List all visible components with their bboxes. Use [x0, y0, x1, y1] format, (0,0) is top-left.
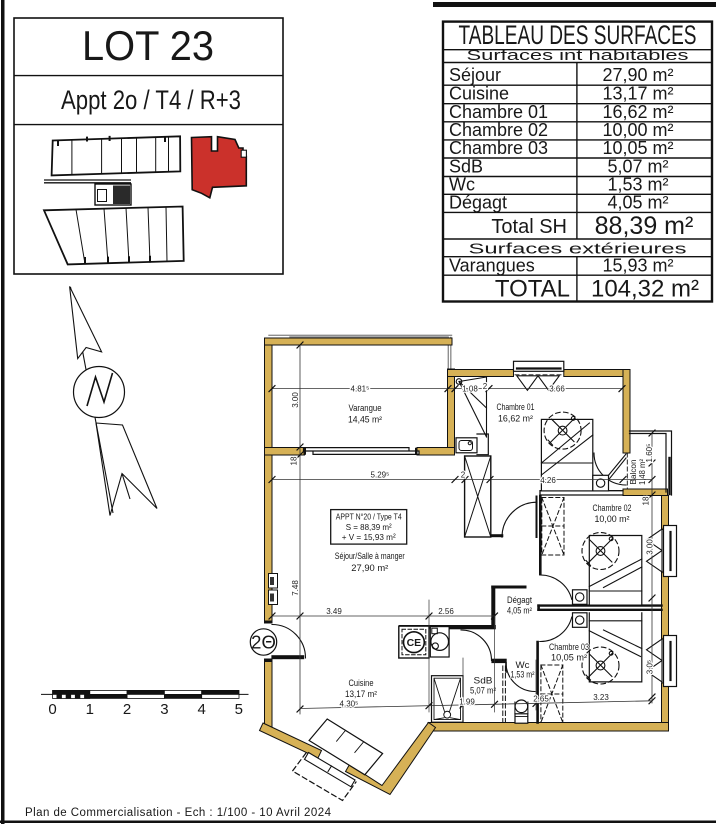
- svg-text:SdB: SdB: [474, 676, 493, 686]
- svg-text:Surfaces int habitables: Surfaces int habitables: [467, 48, 689, 64]
- svg-text:18: 18: [642, 496, 651, 505]
- svg-text:2: 2: [461, 471, 466, 480]
- svg-text:Cuisine: Cuisine: [449, 84, 509, 104]
- svg-text:3.49: 3.49: [326, 607, 342, 616]
- svg-text:Chambre 01: Chambre 01: [449, 102, 548, 122]
- svg-text:5: 5: [235, 701, 243, 718]
- svg-text:3.0⁵: 3.0⁵: [646, 660, 655, 674]
- svg-text:10,00 m²: 10,00 m²: [595, 514, 630, 524]
- svg-text:3.00: 3.00: [646, 539, 655, 555]
- svg-text:18: 18: [290, 456, 299, 465]
- svg-text:27,90 m²: 27,90 m²: [602, 65, 673, 85]
- svg-text:Appt 2o / T4 / R+3: Appt 2o / T4 / R+3: [61, 85, 241, 115]
- svg-text:13,17 m²: 13,17 m²: [602, 84, 673, 104]
- svg-text:APPT N°20 / Type T4: APPT N°20 / Type T4: [336, 513, 402, 522]
- svg-text:10,05 m²: 10,05 m²: [551, 653, 587, 663]
- svg-text:S = 88,39 m²: S = 88,39 m²: [346, 522, 392, 532]
- svg-text:+ V = 15,93 m²: + V = 15,93 m²: [342, 532, 396, 542]
- svg-text:2: 2: [123, 701, 131, 718]
- svg-text:10,00 m²: 10,00 m²: [602, 120, 673, 140]
- svg-text:Séjour: Séjour: [449, 65, 501, 85]
- svg-text:4,05 m²: 4,05 m²: [607, 192, 668, 212]
- svg-text:2: 2: [483, 382, 488, 391]
- svg-text:Wc: Wc: [449, 174, 475, 194]
- svg-text:Séjour/Salle à manger: Séjour/Salle à manger: [335, 551, 405, 561]
- svg-text:Dégagt: Dégagt: [507, 595, 532, 605]
- svg-text:1.99: 1.99: [459, 698, 475, 707]
- svg-text:Plan de Commercialisation - Ec: Plan de Commercialisation - Ech : 1/100 …: [25, 807, 332, 819]
- svg-text:4.81⁵: 4.81⁵: [351, 384, 370, 393]
- svg-text:Varangue: Varangue: [349, 403, 382, 413]
- svg-text:TOTAL: TOTAL: [495, 276, 570, 303]
- svg-text:LOT 23: LOT 23: [82, 22, 214, 69]
- svg-text:Chambre 02: Chambre 02: [449, 120, 548, 140]
- svg-text:4: 4: [198, 701, 206, 718]
- svg-text:104,32 m²: 104,32 m²: [591, 276, 699, 303]
- svg-text:3.66: 3.66: [549, 384, 565, 393]
- svg-text:10,05 m²: 10,05 m²: [602, 138, 673, 158]
- svg-text:13,17 m²: 13,17 m²: [345, 689, 377, 699]
- svg-text:Cuisine: Cuisine: [349, 678, 374, 688]
- svg-text:2.65: 2.65: [533, 695, 549, 704]
- svg-text:5.29⁵: 5.29⁵: [371, 471, 390, 480]
- svg-text:Chambre 02: Chambre 02: [593, 503, 632, 513]
- svg-text:1.08: 1.08: [462, 385, 478, 394]
- svg-text:1,53 m²: 1,53 m²: [607, 174, 668, 194]
- svg-text:27,90 m²: 27,90 m²: [351, 563, 388, 573]
- svg-text:2.56: 2.56: [438, 607, 454, 616]
- svg-text:TABLEAU DES SURFACES: TABLEAU DES SURFACES: [459, 20, 697, 50]
- svg-text:Chambre 03: Chambre 03: [449, 138, 548, 158]
- svg-text:7.48: 7.48: [291, 580, 300, 596]
- svg-text:1,53 m²: 1,53 m²: [511, 670, 535, 680]
- svg-text:Wc: Wc: [516, 660, 531, 670]
- svg-text:4,05 m²: 4,05 m²: [507, 606, 532, 616]
- svg-text:Dégagt: Dégagt: [449, 192, 507, 212]
- svg-text:3: 3: [160, 701, 168, 718]
- svg-text:Chambre 01: Chambre 01: [497, 402, 535, 412]
- svg-text:1: 1: [86, 701, 94, 718]
- svg-text:0: 0: [48, 701, 56, 718]
- svg-text:3.23: 3.23: [593, 693, 609, 702]
- svg-text:3.00: 3.00: [291, 392, 300, 408]
- svg-text:88,39 m²: 88,39 m²: [595, 212, 694, 240]
- svg-text:4.30⁵: 4.30⁵: [340, 700, 359, 709]
- svg-text:4.26: 4.26: [540, 476, 556, 485]
- svg-text:15,93 m²: 15,93 m²: [602, 256, 673, 276]
- svg-text:2Θ: 2Θ: [251, 632, 276, 653]
- svg-text:CE: CE: [407, 637, 422, 649]
- svg-text:16,62 m²: 16,62 m²: [602, 102, 673, 122]
- svg-text:14,45 m²: 14,45 m²: [348, 415, 382, 425]
- svg-text:Balcon: Balcon: [629, 460, 638, 485]
- svg-text:1.60⁵: 1.60⁵: [645, 444, 654, 463]
- svg-text:16,62 m²: 16,62 m²: [498, 414, 533, 424]
- svg-text:Chambre 03: Chambre 03: [549, 642, 589, 652]
- svg-text:5,07 m²: 5,07 m²: [470, 686, 496, 696]
- svg-text:Varangues: Varangues: [449, 256, 535, 276]
- svg-text:Total SH: Total SH: [491, 216, 567, 238]
